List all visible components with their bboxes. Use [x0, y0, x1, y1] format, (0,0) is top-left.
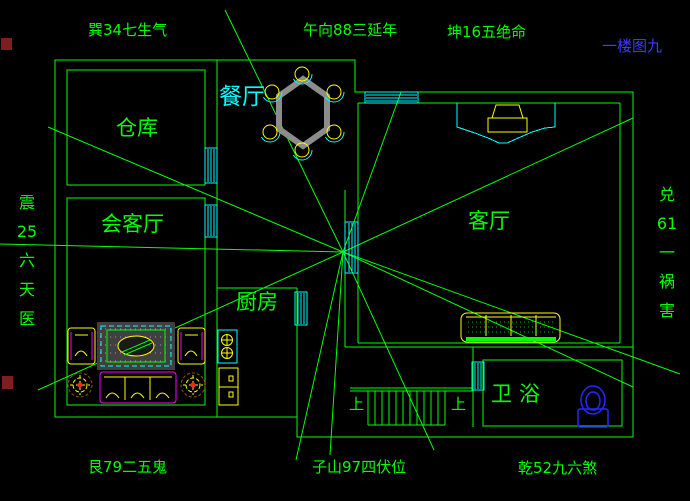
room-label-reception: 会客厅 [101, 213, 164, 236]
armchair-right [178, 328, 205, 364]
stair-treads [368, 391, 445, 425]
stove [218, 330, 237, 363]
compass-label-bottom-center: 子山97四伏位 [312, 459, 406, 476]
grip-mark-left [2, 376, 13, 389]
carpet [97, 322, 175, 370]
dining-table [279, 79, 327, 146]
room-label-kitchen: 厨房 [236, 291, 278, 314]
reception-window [205, 205, 217, 237]
compass-label-right-column: 兑 61 一 祸 害 [652, 186, 682, 331]
compass-right-char: 害 [659, 302, 675, 331]
reception-furniture [68, 322, 205, 403]
center-door [345, 222, 358, 273]
compass-left-char: 医 [19, 310, 35, 339]
compass-label-top-right: 坤16五绝命 [447, 24, 526, 41]
windows [205, 92, 555, 390]
cad-canvas: 巽34七生气 午向88三延年 坤16五绝命 一楼图九 震 25 六 天 医 兑 … [0, 0, 690, 501]
plant-right [181, 373, 205, 397]
stairs-up-label-right: 上 [451, 396, 466, 413]
compass-left-char: 天 [19, 281, 35, 310]
room-label-storage: 仓库 [116, 117, 158, 140]
refrigerator [219, 368, 238, 405]
living-room-sofa [461, 313, 560, 342]
compass-left-char: 震 [19, 194, 35, 223]
compass-right-char: 61 [657, 215, 677, 244]
storage-window [205, 148, 217, 183]
compass-right-char: 一 [659, 244, 675, 273]
room-label-living: 客厅 [468, 210, 510, 233]
tv-alcove [457, 103, 555, 143]
tv-set [488, 105, 527, 132]
room-label-bathroom: 卫浴 [491, 383, 547, 406]
compass-label-top-center: 午向88三延年 [303, 22, 397, 39]
compass-label-top-left: 巽34七生气 [88, 22, 167, 39]
stairs-up-label-left: 上 [349, 396, 364, 413]
grip-mark-top [1, 38, 12, 50]
bathroom-window [472, 362, 484, 390]
room-label-dining: 餐厅 [219, 85, 265, 110]
compass-left-char: 六 [19, 252, 35, 281]
compass-label-bottom-left: 艮79二五鬼 [88, 459, 167, 476]
compass-left-char: 25 [17, 223, 37, 252]
compass-label-left-column: 震 25 六 天 医 [12, 194, 42, 339]
kitchen-appliances [218, 330, 238, 405]
compass-right-char: 祸 [659, 273, 675, 302]
compass-label-bottom-right: 乾52九六煞 [518, 460, 597, 477]
floor-plan-drawing [0, 0, 690, 501]
compass-right-char: 兑 [659, 186, 675, 215]
living-top-window [365, 92, 418, 103]
toilet [578, 386, 608, 427]
dining-table-set [260, 64, 344, 160]
sheet-title: 一楼图九 [602, 38, 662, 55]
three-seat-sofa [100, 372, 176, 403]
armchair-left [68, 328, 95, 364]
plant-left [68, 373, 92, 397]
